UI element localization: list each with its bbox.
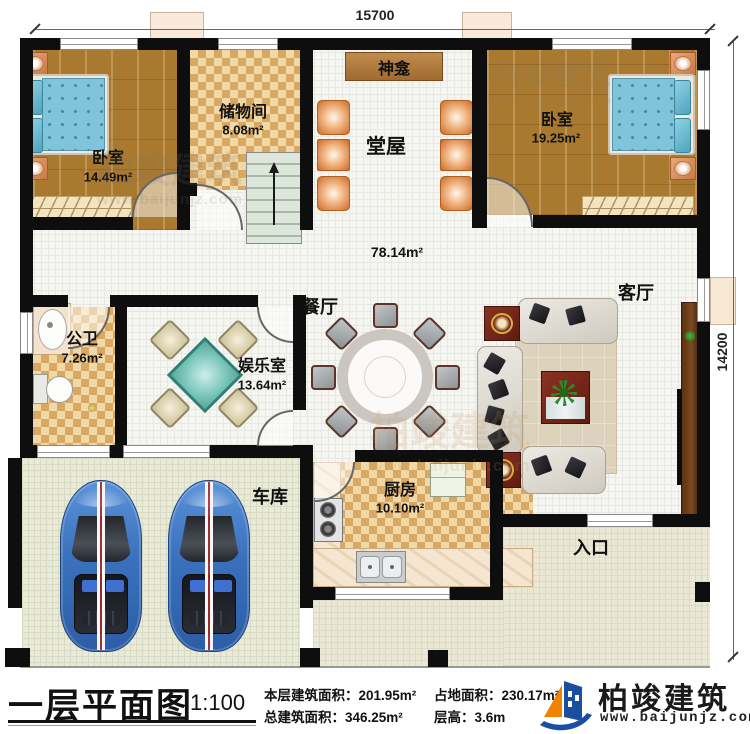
sofa-pillow [487,428,510,451]
nightstand [670,157,696,180]
wall [20,445,37,458]
wall [490,450,503,600]
floorplan-page: { "plan": { "dim_top": "15700", "dim_rig… [0,0,750,734]
hall-chair [317,176,350,211]
stove [314,498,343,542]
window [697,278,710,322]
terrace-edge [20,666,710,668]
dimension-line-top [35,29,715,30]
door-stop [88,404,96,412]
window [20,312,33,354]
gameroom-label: 娱乐室 [238,359,286,375]
bathroom-area: 7.26m² [61,352,102,365]
wall [533,215,697,228]
living-label: 客厅 [618,284,654,302]
bathroom-label: 公卫 [66,332,98,348]
sofa-pillow [483,352,506,375]
sofa-pillow [529,303,551,325]
sofa-pillow [531,455,553,477]
shrine-altar: 神龛 [345,52,443,81]
wall [278,38,552,50]
wall [177,196,190,230]
garage-label: 车库 [252,488,288,506]
dining-chair [373,427,398,452]
wall [653,514,710,527]
toilet-bowl [46,376,73,403]
title-rule [8,720,256,723]
pillar [300,648,320,667]
end-table [484,306,520,341]
sofa-pillow [565,305,586,326]
title-block: 一层平面图 1:100 本层建筑面积：201.95m² 占地面积：230.17m… [0,672,750,734]
brand-logo: 柏竣建筑 www.baijunjz.com [536,672,750,734]
burner [320,502,336,518]
burner [320,521,336,537]
window [552,38,632,50]
title-rule-shadow [8,725,256,726]
wall [20,38,33,312]
drawing-scale: 1:100 [190,690,245,716]
tv-icon [677,389,682,485]
wall [115,295,127,458]
brand-url: www.baijunjz.com [600,710,750,726]
sink-basin [382,556,402,578]
hall-label: 堂屋 [366,137,406,157]
dining-label: 餐厅 [302,298,338,316]
wall [293,307,306,410]
wall [177,183,197,196]
bedroom1-label: 卧室 [92,151,124,167]
sofa-left [477,346,523,454]
wall [300,38,313,230]
bed [608,74,695,155]
sink-basin [360,556,380,578]
window [37,445,110,458]
wall [110,445,123,458]
car-racing-stripe [204,482,214,650]
wall [697,322,710,527]
hall-chair [317,100,350,135]
car [168,480,250,652]
sofa-pillow [488,379,510,401]
window [335,587,450,600]
dining-chair [435,365,460,390]
storage-area: 8.08m² [222,124,263,137]
wall [450,587,503,600]
dining-chair [311,365,336,390]
plant [551,380,577,406]
hall-chair [440,100,473,135]
storage-label: 储物间 [219,105,267,121]
pillar [5,648,30,667]
pillar [695,582,710,602]
window [60,38,138,50]
central-area: 78.14m² [371,245,423,259]
wall [300,458,313,608]
wall [177,38,190,196]
kitchen-area: 10.10m² [376,502,424,515]
wall [20,295,68,307]
entrance-label: 入口 [573,539,609,557]
pillow [674,118,691,153]
stat-total-area: 总建筑面积：346.25m² [264,706,403,726]
wall [20,217,133,230]
window [697,70,710,130]
wall [355,450,490,462]
window [218,38,278,50]
stat-floor-height: 层高：3.6m [434,706,505,726]
dining-chair [373,303,398,328]
pillow [674,80,691,115]
wall [127,295,258,307]
wall [210,445,313,458]
wall [697,130,710,278]
sofa-pillow [564,456,587,479]
logo-icon [536,673,596,733]
sofa-bottom [522,446,606,494]
kitchen-sink [356,551,406,583]
dining-table [337,329,433,425]
window [587,514,653,527]
staircase [246,152,302,244]
dimension-right: 14200 [715,333,729,372]
sink [38,309,67,350]
car [60,480,142,652]
dimension-top: 15700 [356,8,395,22]
stat-floor-area: 本层建筑面积：201.95m² [264,684,416,704]
hall-side-table [440,139,473,171]
bedroom2-label: 卧室 [541,113,573,129]
bedroom2-area: 19.25m² [532,132,580,145]
wall [472,38,487,228]
fridge [430,463,466,497]
window [123,445,210,458]
nightstand [670,52,696,75]
plant [685,331,695,341]
mattress [42,78,105,151]
wall [503,514,587,527]
hall-chair [440,176,473,211]
pillar [428,650,448,667]
wall [20,354,33,458]
mattress [612,78,675,151]
hall-side-table [317,139,350,171]
porch-floor-left [313,600,503,666]
wall [8,458,22,608]
wall [300,587,335,600]
bedroom1-area: 14.49m² [84,171,132,184]
stair-direction-arrow [273,167,275,225]
sofa-top [518,298,618,344]
wall [697,38,710,70]
gameroom-area: 13.64m² [238,379,286,392]
kitchen-label: 厨房 [384,483,416,499]
car-racing-stripe [96,482,106,650]
bed [22,74,109,155]
dimension-line-right [733,42,734,660]
sofa-pillow [484,405,505,426]
shrine-label: 神龛 [378,55,410,79]
